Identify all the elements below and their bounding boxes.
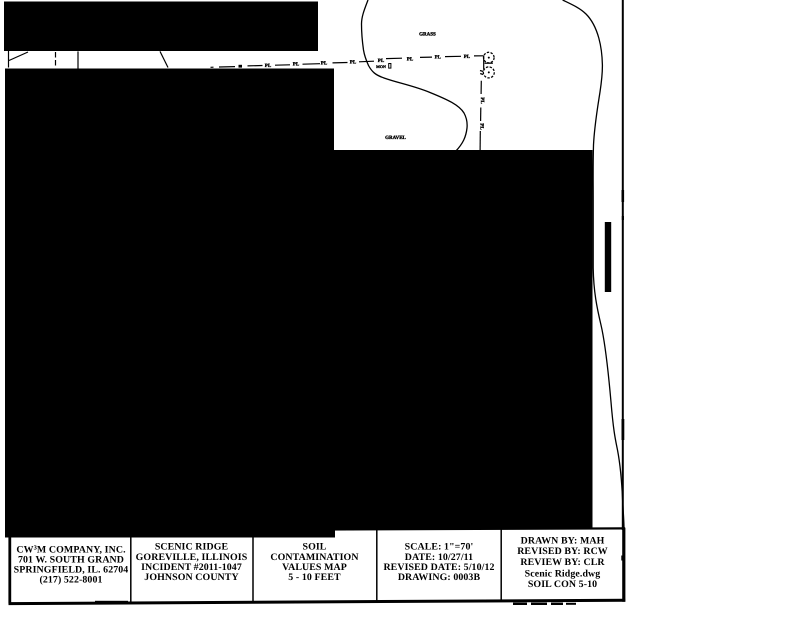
svg-text:REVIEW BY: CLR: REVIEW BY: CLR [520, 557, 605, 568]
svg-text:GRASS: GRASS [419, 32, 436, 38]
svg-text:SOIL CON 5-10: SOIL CON 5-10 [528, 579, 597, 590]
svg-text:Scenic Ridge.dwg: Scenic Ridge.dwg [525, 569, 601, 580]
svg-text:PL: PL [321, 61, 328, 67]
svg-text:REVISED BY: RCW: REVISED BY: RCW [517, 546, 608, 557]
svg-text:JOHNSON COUNTY: JOHNSON COUNTY [144, 572, 238, 583]
svg-text:DRAWING: 0003B: DRAWING: 0003B [398, 572, 481, 583]
svg-text:PL: PL [478, 123, 484, 130]
svg-text:PL: PL [407, 56, 414, 62]
svg-text:PL: PL [265, 63, 272, 69]
svg-text:PL: PL [293, 62, 300, 68]
svg-text:(217) 522-8001: (217) 522-8001 [39, 575, 102, 586]
svg-text:PL: PL [479, 97, 485, 104]
svg-text:5 - 10 FEET: 5 - 10 FEET [288, 572, 341, 583]
svg-text:MON: MON [376, 64, 386, 69]
svg-text:PL: PL [350, 59, 357, 65]
svg-text:GRAVEL: GRAVEL [385, 135, 406, 141]
svg-text:PL: PL [435, 55, 442, 61]
svg-text:PL: PL [464, 54, 471, 60]
svg-text:DRAWN BY: MAH: DRAWN BY: MAH [521, 536, 605, 547]
